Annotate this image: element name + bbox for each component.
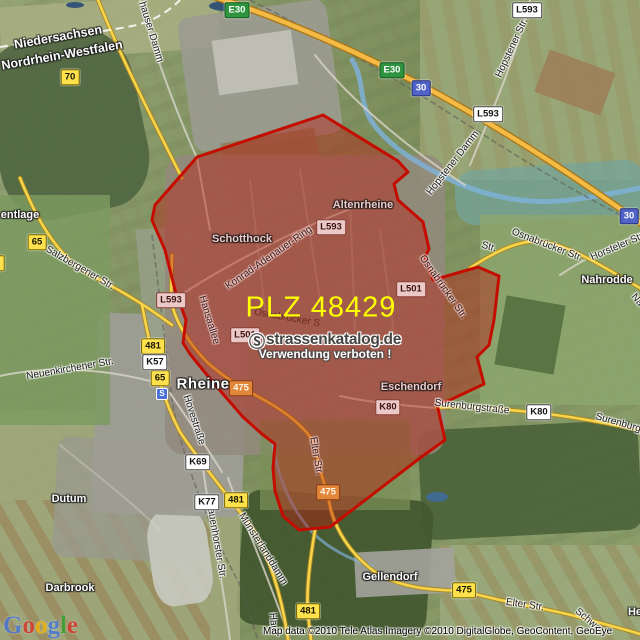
route-badge: 475 — [316, 484, 340, 500]
street-label: Surenburgst — [594, 411, 640, 437]
street-label: Münsterlanddamm — [236, 511, 289, 587]
route-badge: K69 — [185, 454, 210, 470]
route-badge: 30 — [412, 80, 431, 96]
place-label: entlage — [1, 209, 40, 221]
street-label: Surenburgstraße — [434, 398, 510, 417]
route-badge: 481 — [224, 492, 248, 508]
route-badge: K57 — [142, 354, 167, 370]
route-badge: K80 — [526, 404, 551, 420]
street-label: Salzbergener Str. — [44, 244, 116, 292]
route-badge: 65 — [28, 234, 47, 250]
route-badge: L501 — [396, 281, 426, 297]
street-label: Elter Str. — [307, 436, 324, 476]
place-label: Nahrodde — [581, 274, 632, 286]
route-badge: K80 — [375, 399, 400, 415]
place-label: Schotthock — [212, 233, 272, 245]
route-badge: 65 — [151, 370, 170, 386]
place-label: He — [628, 606, 640, 618]
route-badge: L593 — [316, 219, 346, 235]
route-badge: L593 — [473, 106, 503, 122]
street-label: Hopstener Damm — [425, 129, 482, 198]
street-label: Hansaallee — [196, 294, 221, 345]
place-label: Rheine — [176, 376, 229, 393]
street-label: Hovestraße — [181, 394, 207, 447]
street-label: hauser Damm — [137, 0, 166, 63]
street-label: Str. — [480, 240, 497, 255]
street-label: Hauenhorster Str. — [204, 500, 228, 579]
route-badge: E30 — [225, 2, 250, 18]
google-logo: Google — [3, 612, 78, 640]
place-label: Gellendorf — [362, 571, 417, 583]
route-badge: 481 — [296, 603, 320, 619]
street-label: Horsteler Str — [589, 231, 640, 263]
google-logo-letter: G — [3, 612, 22, 639]
google-logo-letter: o — [35, 612, 48, 639]
street-label: Elter Str. — [505, 597, 545, 613]
train-station-icon: S — [156, 388, 168, 400]
route-badge: L593 — [512, 2, 542, 18]
street-label: Osnabrücker Str. — [510, 226, 584, 263]
street-label: Hopstener Str. — [494, 17, 531, 80]
google-logo-letter: g — [47, 612, 60, 639]
route-badge: 70 — [0, 255, 4, 271]
route-badge: 481 — [141, 338, 165, 354]
route-badge: K77 — [194, 494, 219, 510]
map-attribution: Map data ©2010 Tele Atlas Imagery ©2010 … — [263, 626, 612, 637]
plz-area-label: PLZ 48429 — [246, 292, 397, 325]
place-label: Altenrheine — [333, 199, 394, 211]
route-badge: L593 — [156, 292, 186, 308]
route-badge: 475 — [229, 380, 253, 396]
place-label: Dutum — [52, 493, 87, 505]
watermark-notice: Verwendung verboten ! — [259, 347, 392, 361]
google-logo-letter: l — [60, 612, 67, 639]
google-logo-letter: e — [67, 612, 78, 639]
street-label: Na — [629, 292, 640, 309]
route-badge: 475 — [452, 582, 476, 598]
google-logo-letter: o — [22, 612, 35, 639]
route-badge: 70 — [61, 69, 80, 85]
street-label: Neuenkirchener Str. — [26, 356, 115, 382]
place-label: Eschendorf — [381, 381, 442, 393]
map-viewport[interactable]: NiedersachsenNordrhein-WestfalenentlageS… — [0, 0, 640, 640]
route-badge: E30 — [380, 62, 405, 78]
route-badge: 30 — [620, 208, 639, 224]
place-label: Darbrook — [46, 582, 95, 594]
